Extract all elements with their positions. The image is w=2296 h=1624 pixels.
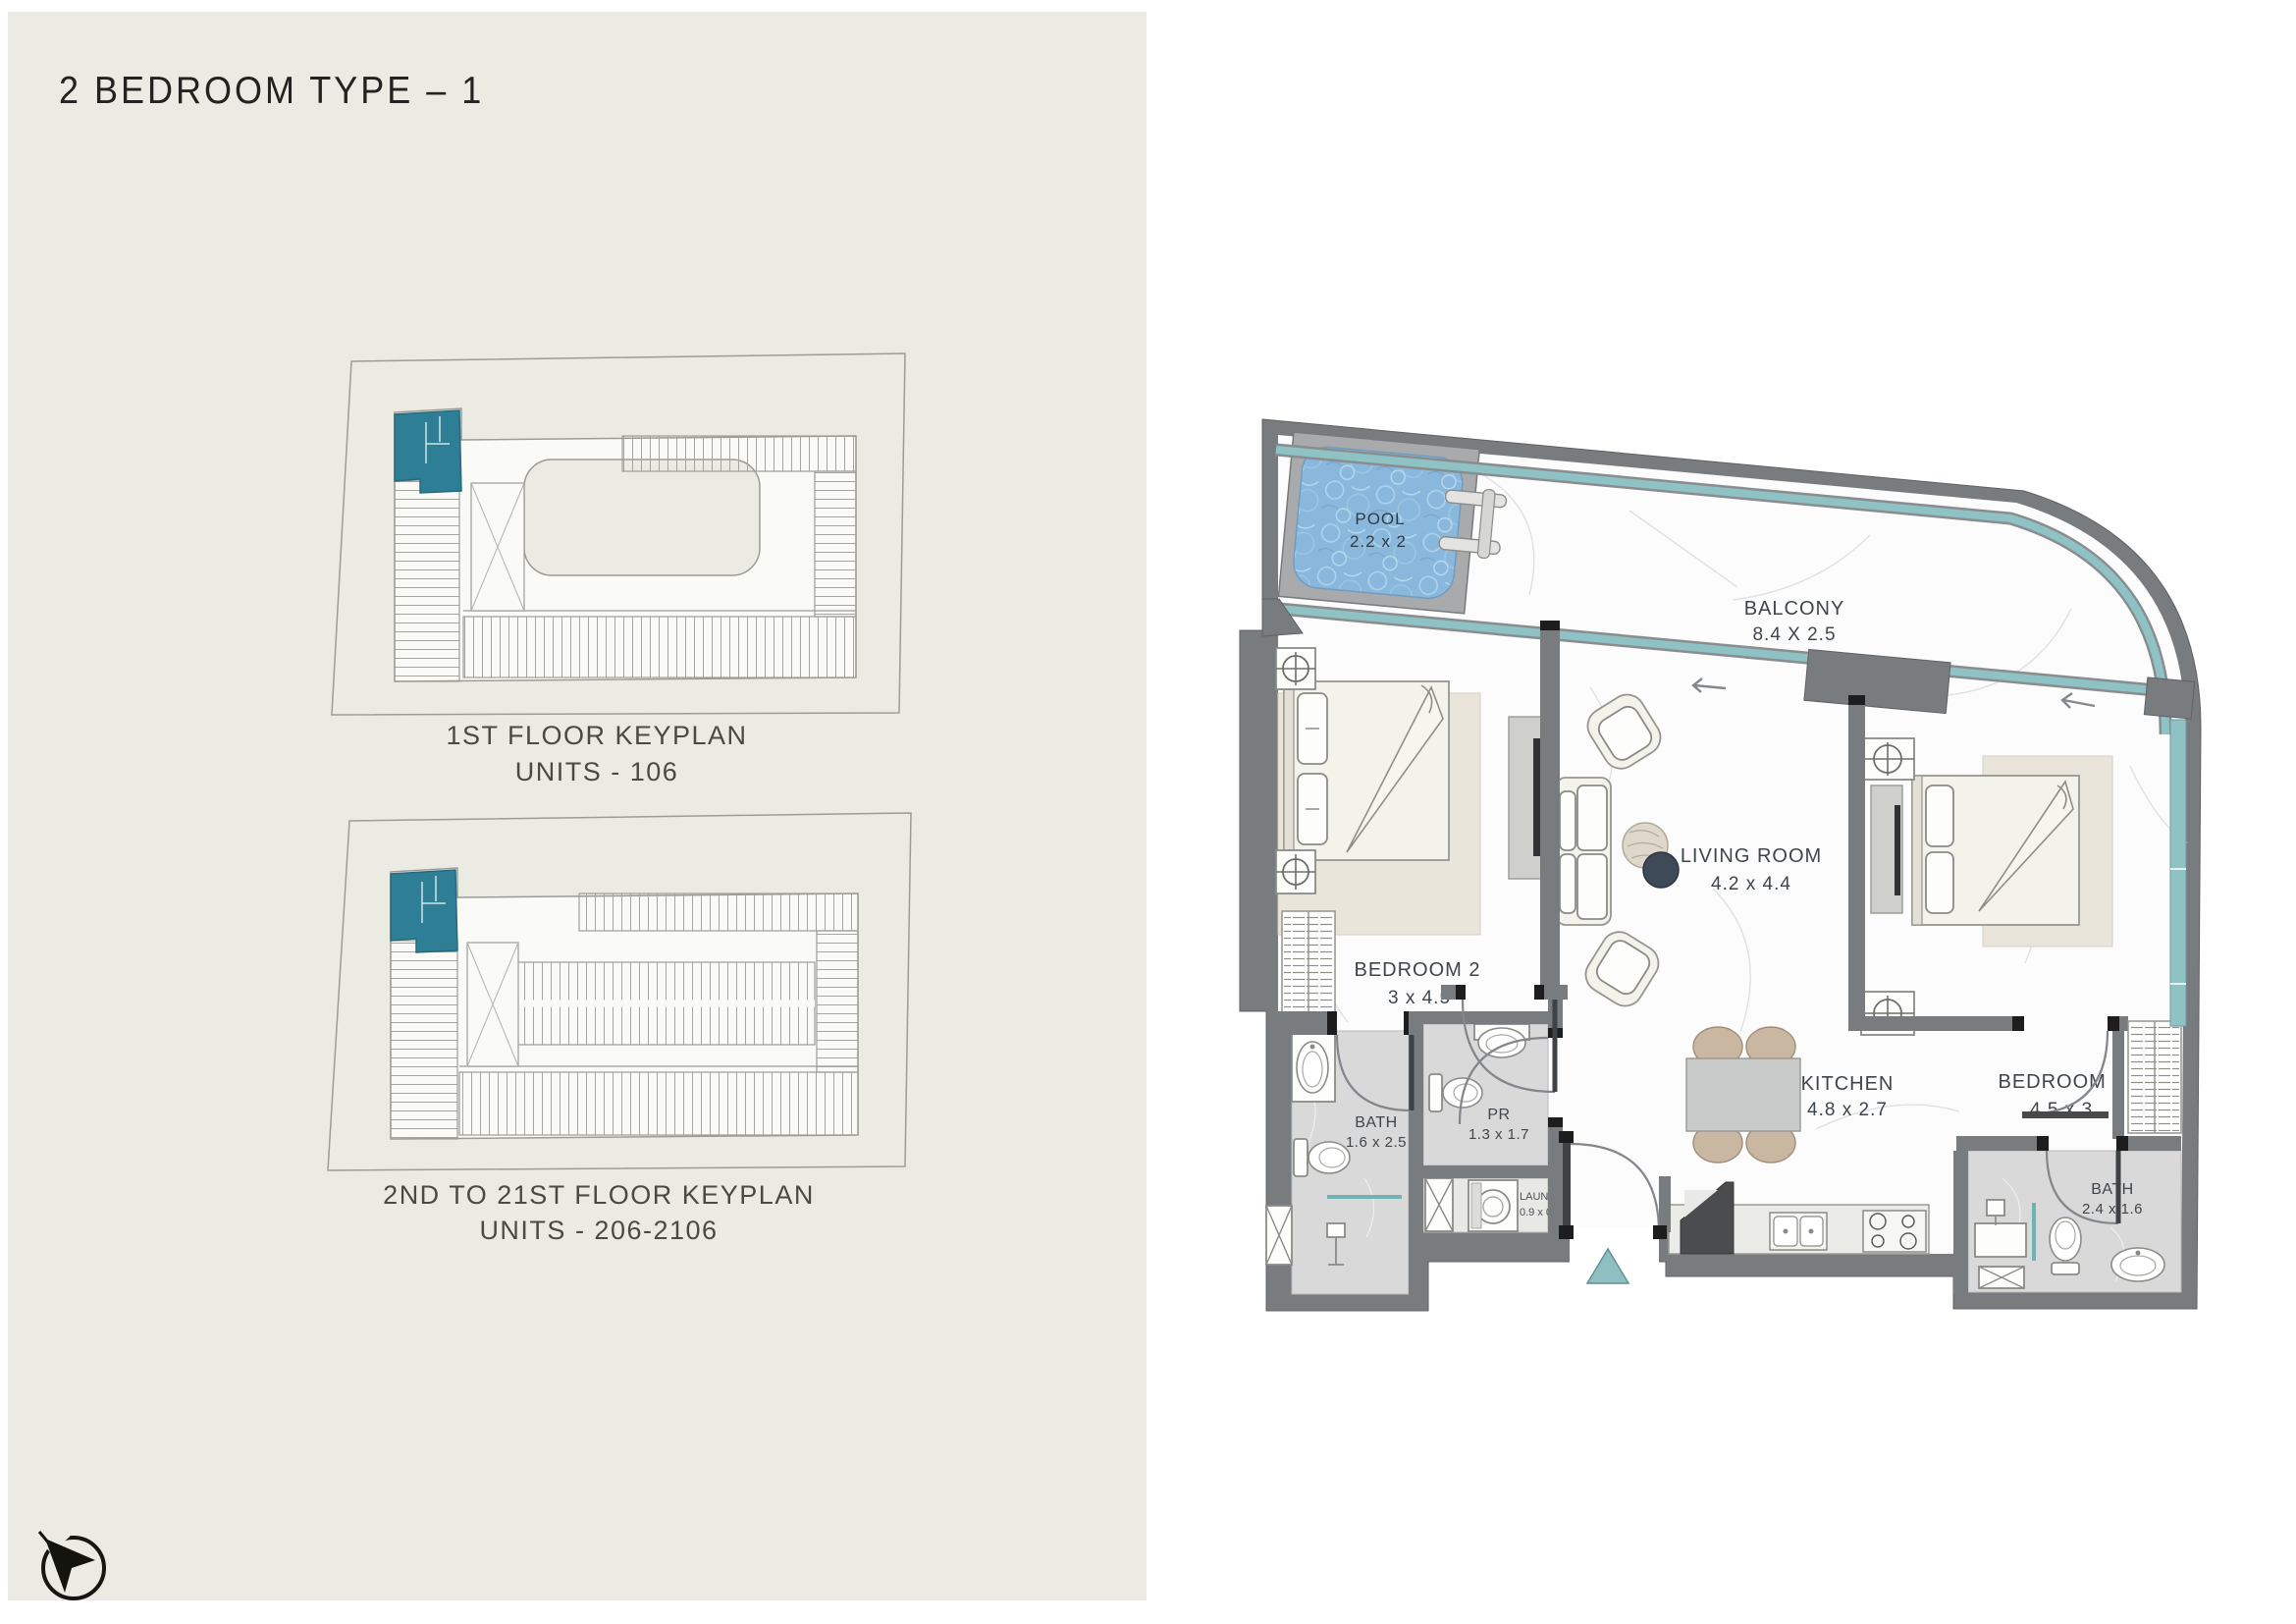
room-label-bedroom2: BEDROOM 2 <box>1354 959 1480 981</box>
room-dims-kitchen: 4.8 x 2.7 <box>1807 1100 1888 1120</box>
keyplan1-caption-line2: UNITS - 106 <box>515 757 679 786</box>
bath2-sink <box>2111 1248 2164 1281</box>
keyplan2-caption-line2: UNITS - 206-2106 <box>479 1216 718 1245</box>
keyplan1-caption-line1: 1ST FLOOR KEYPLAN <box>446 721 747 750</box>
room-dims-pool: 2.2 x 2 <box>1350 532 1407 551</box>
bedroom1-tv <box>1895 805 1900 895</box>
keyplan1-courtyard <box>524 460 760 575</box>
room-dims-bath2: 2.4 x 1.6 <box>2082 1201 2143 1218</box>
toilet-icon <box>1294 1139 1350 1176</box>
toilet-icon <box>2050 1218 2081 1274</box>
bedroom2-bed <box>1284 681 1449 860</box>
keyplan2-highlighted-unit <box>391 870 457 952</box>
room-label-bedroom1: BEDROOM 1 <box>1998 1071 2124 1093</box>
room-label-kitchen: KITCHEN <box>1801 1073 1895 1095</box>
unit-floorplan: POOL 2.2 x 2 BALCONY 8.4 X 2.5 <box>1240 419 2201 1311</box>
keyplan2-caption-line1: 2ND TO 21ST FLOOR KEYPLAN <box>383 1180 815 1210</box>
bedroom1-closet <box>2128 1021 2181 1133</box>
room-label-pr: PR <box>1487 1107 1510 1123</box>
shaft-icon <box>1266 1206 1292 1265</box>
powder-room: PR 1.3 x 1.7 <box>1423 1024 1548 1165</box>
stove-icon <box>1863 1211 1926 1252</box>
bedroom1-pillow <box>1926 852 1953 913</box>
keyplan1-highlighted-unit <box>395 410 461 493</box>
bedroom1-bed <box>1912 776 2079 925</box>
sofa <box>1556 778 1611 925</box>
room-label-living: LIVING ROOM <box>1681 845 1822 867</box>
bedroom2-tv <box>1533 738 1540 856</box>
kitchen-sink <box>1770 1213 1827 1250</box>
room-label-balcony: BALCONY <box>1744 598 1845 620</box>
room-label-pool: POOL <box>1355 510 1405 528</box>
window-mullion-icon <box>1861 738 1914 780</box>
bedroom1-door-leaf <box>2022 1111 2109 1118</box>
room-dims-bath1: 1.6 x 2.5 <box>1346 1134 1407 1151</box>
bedroom1-pillow <box>1926 785 1953 846</box>
floorplan-page: 2 BEDROOM TYPE – 1 1ST FLOOR KEYPLAN UNI… <box>0 0 2296 1624</box>
window-mullion-icon <box>1276 648 1315 689</box>
bath2: BATH 2.4 x 1.6 <box>1968 1151 2181 1292</box>
room-dims-living: 4.2 x 4.4 <box>1711 874 1791 894</box>
divider-right-wall-stub <box>2144 677 2194 719</box>
bedroom1-window-glass <box>2170 720 2186 1026</box>
entrance-door-leaf <box>1563 1141 1571 1234</box>
room-dims-pr: 1.3 x 1.7 <box>1468 1126 1529 1143</box>
shaft-icon <box>1979 1267 2024 1288</box>
room-dims-balcony: 8.4 X 2.5 <box>1752 624 1836 645</box>
bedroom2-wardrobe <box>1282 911 1335 1021</box>
page-title: 2 BEDROOM TYPE – 1 <box>59 69 484 112</box>
room-label-bath2: BATH <box>2091 1181 2133 1198</box>
left-panel-background <box>8 12 1147 1600</box>
room-label-bath1: BATH <box>1355 1114 1397 1131</box>
bath1-sink <box>1292 1033 1335 1102</box>
side-table <box>1643 852 1679 888</box>
washer-icon <box>1468 1180 1518 1231</box>
dining-table <box>1686 1058 1800 1131</box>
shaft-icon <box>1425 1178 1453 1231</box>
floorplan-canvas: 2 BEDROOM TYPE – 1 1ST FLOOR KEYPLAN UNI… <box>0 0 2296 1624</box>
window-mullion-icon <box>1276 850 1315 893</box>
left-panel: 2 BEDROOM TYPE – 1 1ST FLOOR KEYPLAN UNI… <box>8 12 1147 1600</box>
